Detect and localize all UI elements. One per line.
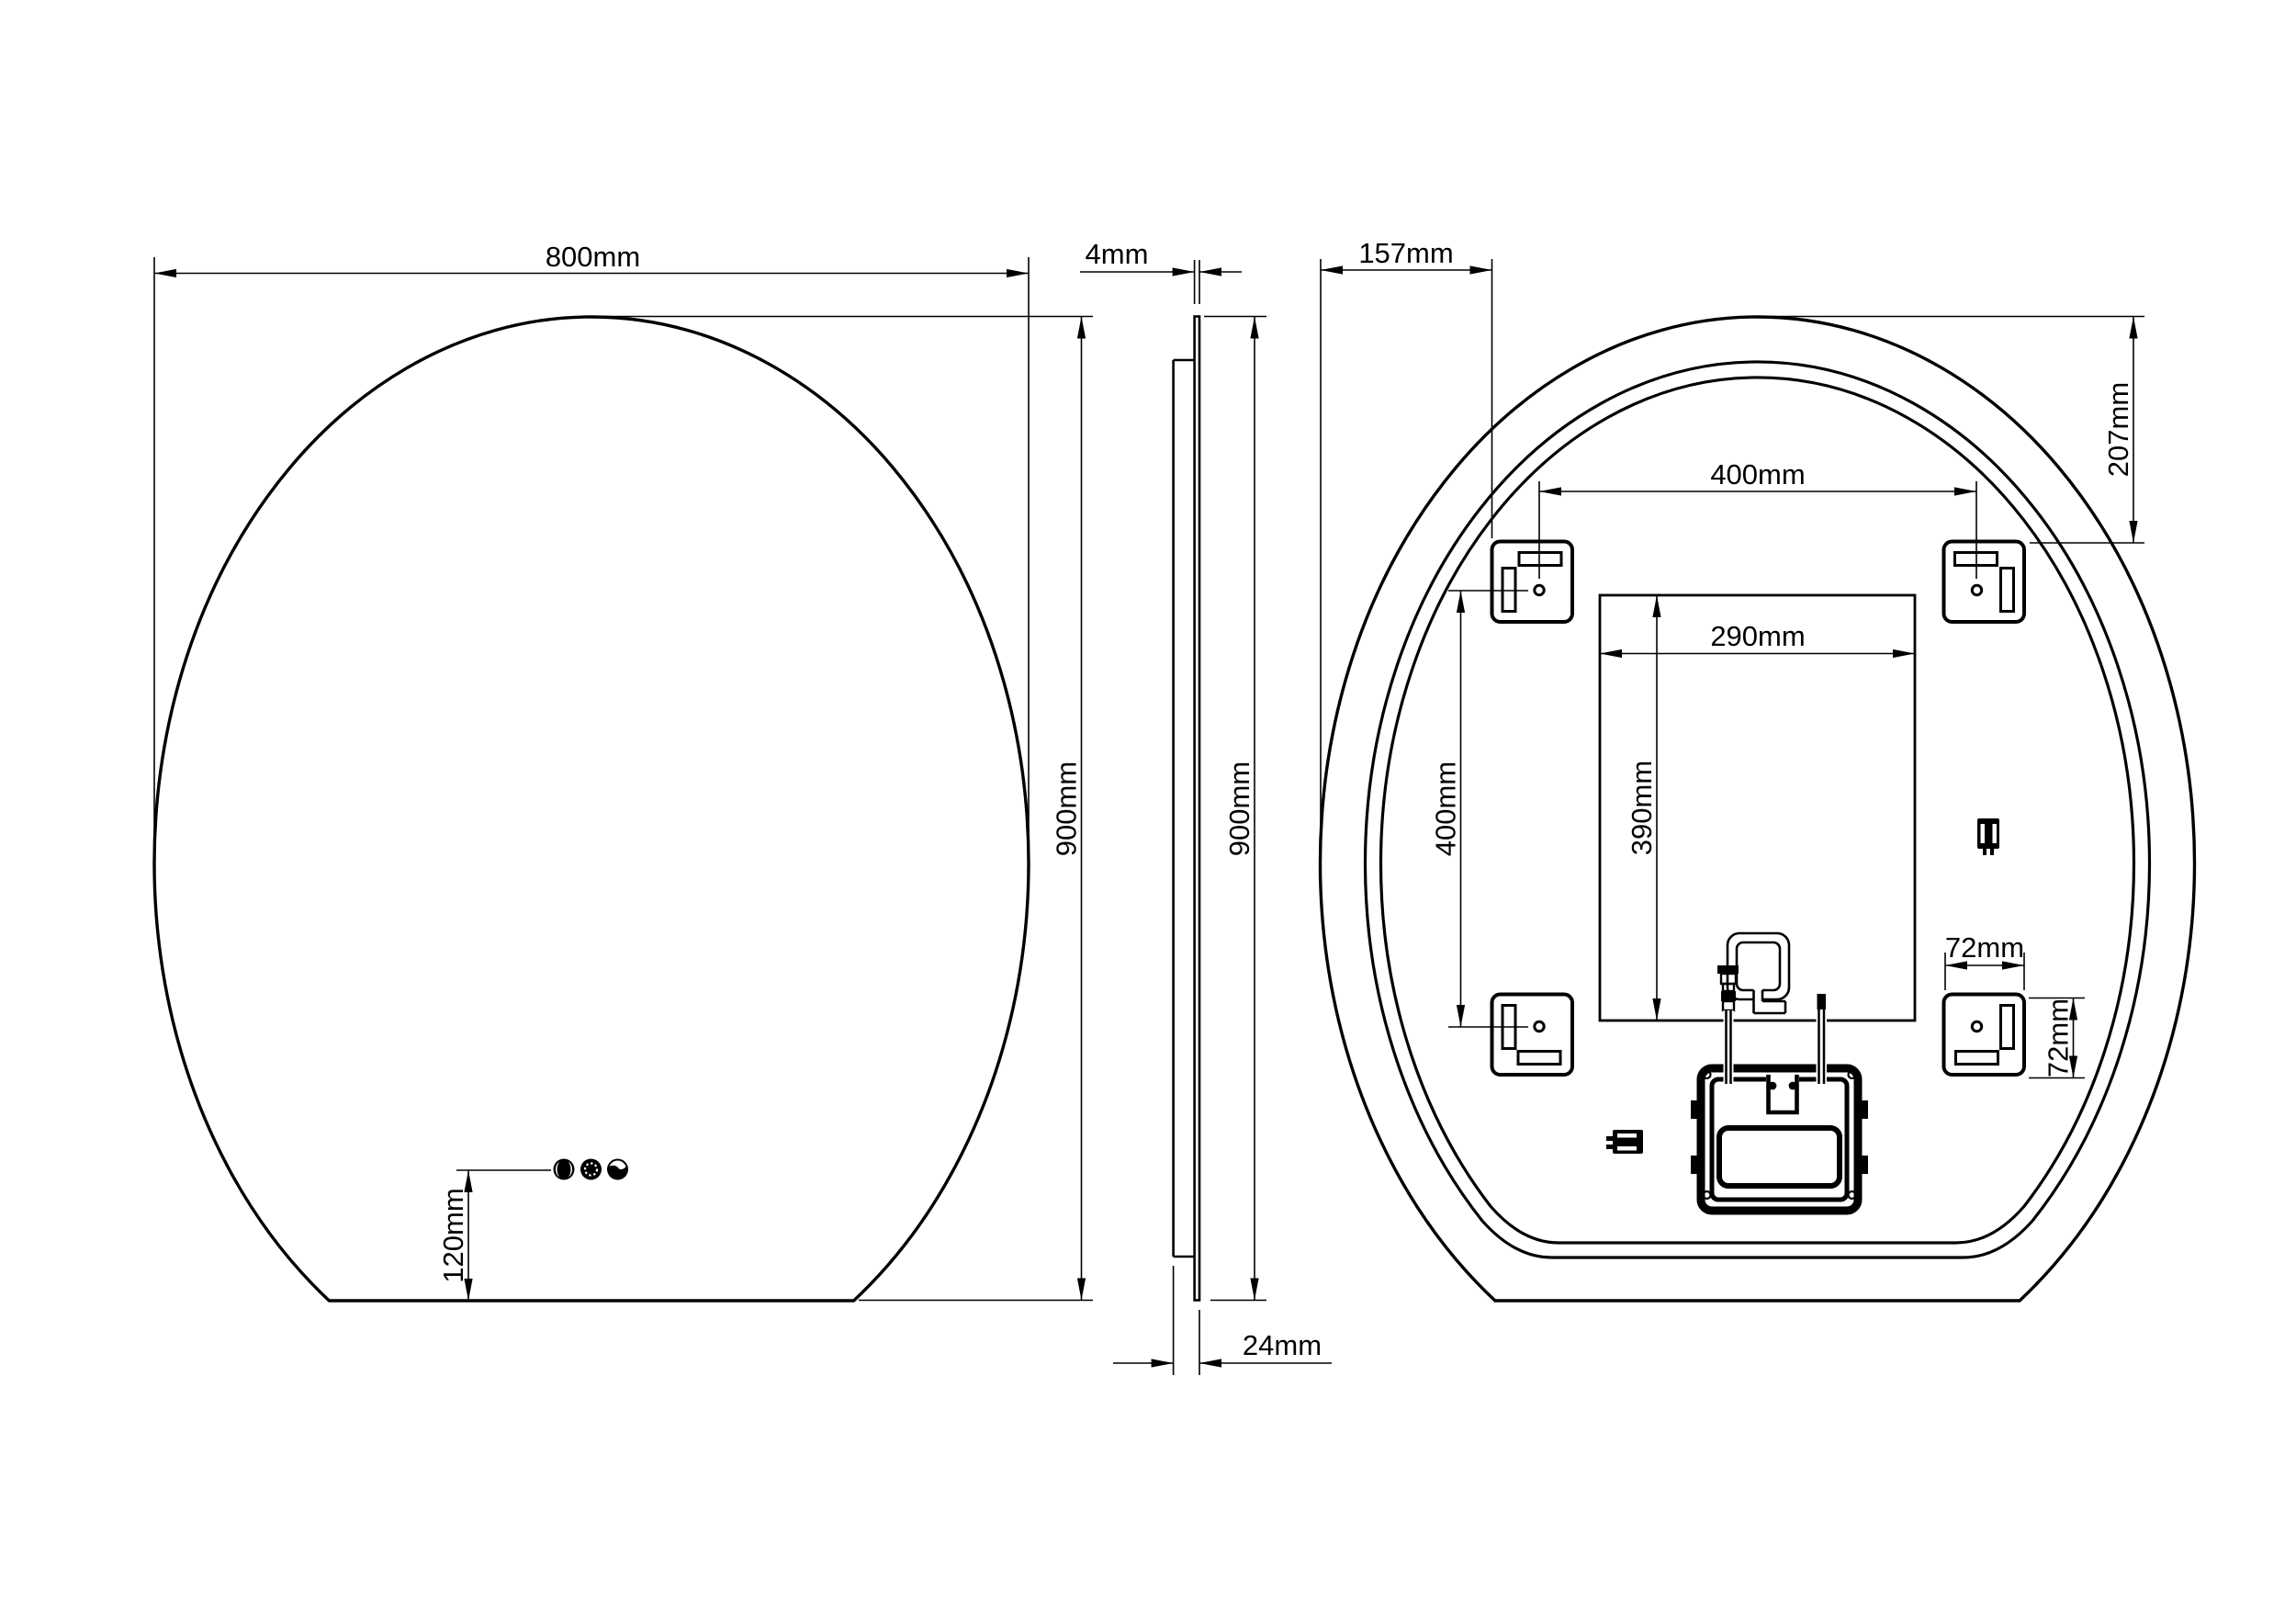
svg-text:72mm: 72mm: [1945, 931, 2024, 964]
svg-text:120mm: 120mm: [437, 1188, 469, 1282]
svg-text:4mm: 4mm: [1086, 238, 1149, 270]
svg-text:390mm: 390mm: [1626, 761, 1658, 855]
svg-text:207mm: 207mm: [2102, 382, 2134, 477]
svg-text:800mm: 800mm: [546, 241, 640, 273]
svg-text:24mm: 24mm: [1243, 1329, 1322, 1361]
svg-text:400mm: 400mm: [1430, 761, 1462, 856]
svg-text:157mm: 157mm: [1358, 237, 1453, 269]
svg-text:400mm: 400mm: [1710, 458, 1805, 491]
svg-text:900mm: 900mm: [1051, 761, 1083, 856]
svg-text:900mm: 900mm: [1223, 761, 1255, 856]
svg-text:72mm: 72mm: [2043, 998, 2075, 1077]
svg-text:290mm: 290mm: [1710, 620, 1805, 652]
